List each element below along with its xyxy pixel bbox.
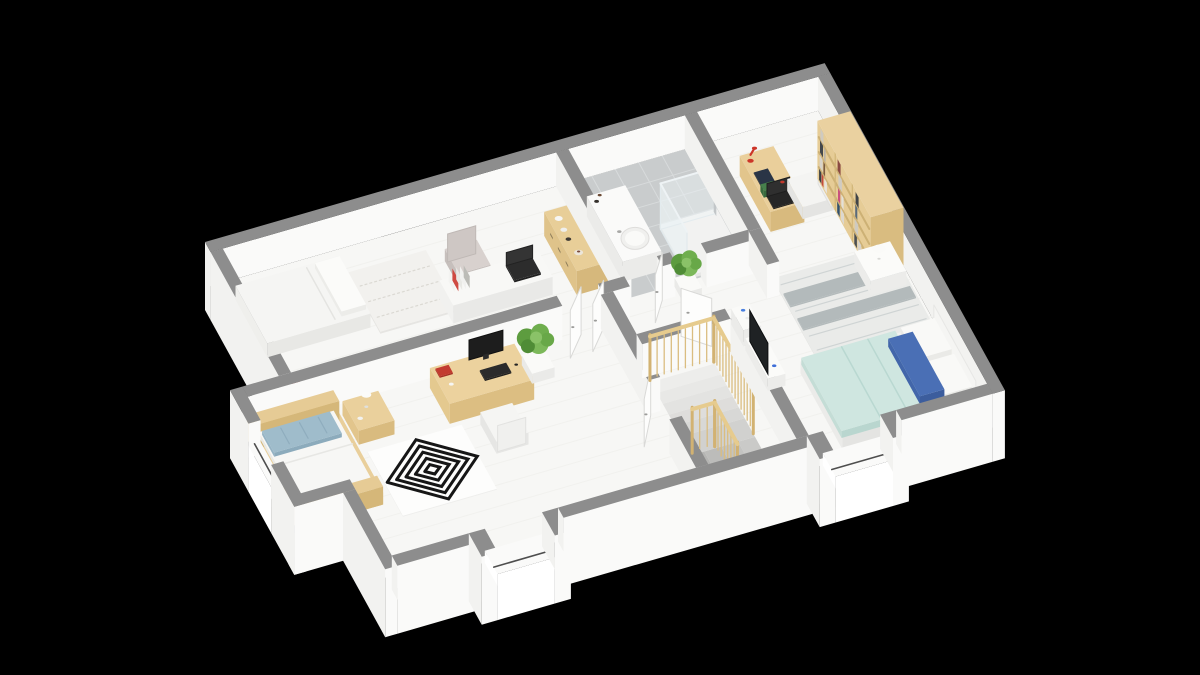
lamp-left-base bbox=[364, 405, 368, 407]
plant-left-bedroom-foliage bbox=[530, 332, 542, 344]
door-handle bbox=[571, 326, 574, 328]
lamp-left-shade bbox=[361, 392, 371, 398]
red-lamp-head bbox=[752, 147, 757, 150]
plant-hall-foliage bbox=[682, 258, 692, 268]
bath-bottle-dark bbox=[594, 200, 599, 203]
console-bottle-blue bbox=[741, 309, 745, 312]
floorplan-svg bbox=[0, 0, 1200, 675]
plant-hall-foliage bbox=[690, 258, 702, 270]
tray-item bbox=[577, 251, 580, 253]
wall-exterior-north-west-face bbox=[205, 242, 211, 320]
door-handle bbox=[644, 413, 647, 415]
bookshelf-divider-2 bbox=[852, 183, 853, 243]
cup-white bbox=[449, 383, 454, 386]
floorplan-3d-render bbox=[0, 0, 1200, 675]
red-mug bbox=[780, 181, 784, 184]
lamp-sphere-stem bbox=[877, 258, 880, 260]
wall-bedroom-door-jamb-south-face bbox=[767, 261, 779, 299]
plant-left-bedroom-foliage bbox=[540, 333, 554, 347]
door-handle bbox=[655, 291, 658, 293]
mouse bbox=[514, 363, 518, 365]
bath-bottle-brown bbox=[598, 194, 602, 196]
tv-bottle-blue bbox=[772, 364, 776, 367]
wall-exterior-east-south-face bbox=[993, 390, 1005, 462]
vase-left bbox=[357, 417, 363, 420]
bookshelf-divider-1 bbox=[835, 152, 836, 212]
vase-white-1 bbox=[555, 216, 563, 221]
door-handle bbox=[594, 320, 597, 322]
vase-dark bbox=[566, 237, 572, 240]
lamp-sphere bbox=[873, 245, 886, 253]
alcove-wall-south-west-face bbox=[289, 497, 295, 575]
sink-basin-inner bbox=[625, 231, 645, 246]
console-bottle-white bbox=[745, 317, 749, 319]
red-lamp-base bbox=[747, 159, 753, 163]
door-handle bbox=[686, 312, 689, 314]
sink-faucet bbox=[617, 230, 621, 233]
vase-white-2 bbox=[560, 228, 567, 232]
